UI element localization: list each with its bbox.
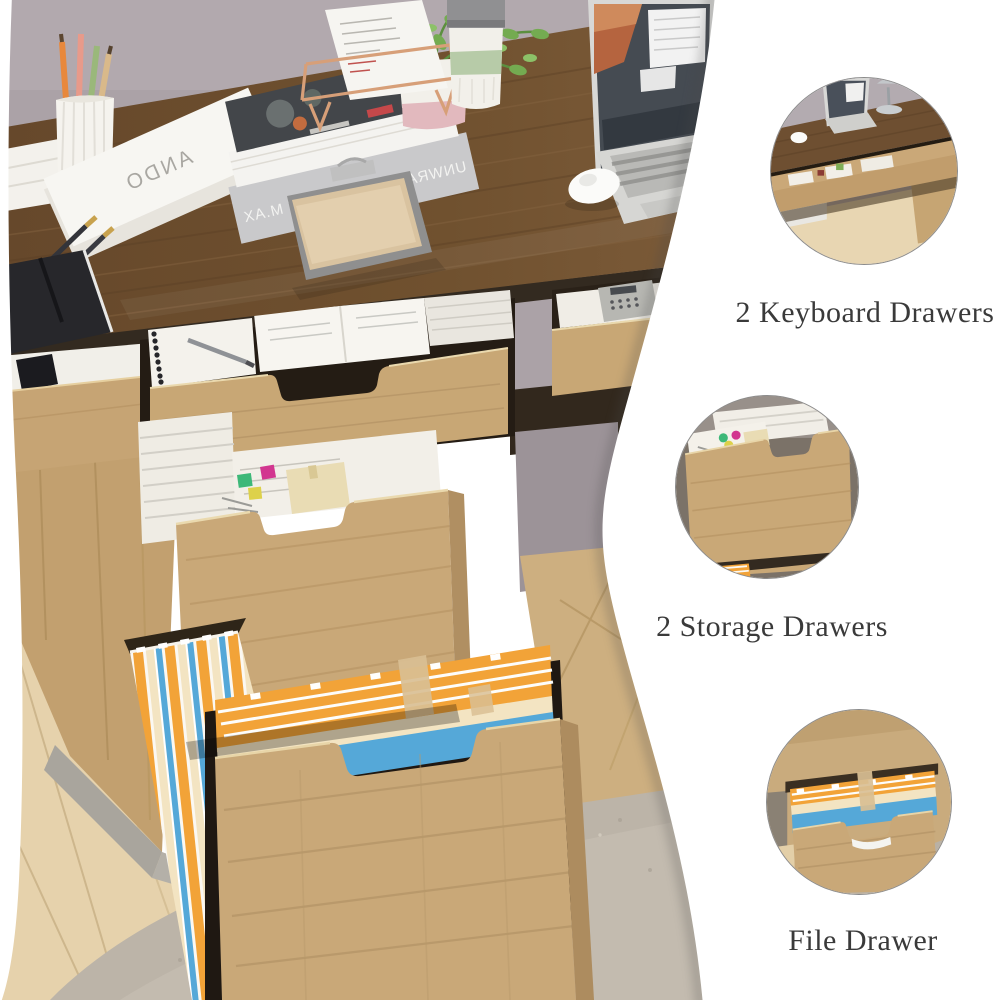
caption-keyboard-drawers: 2 Keyboard Drawers: [705, 296, 1000, 329]
closeup-photo-storage-drawer: [675, 395, 859, 579]
keyboard-drawer-inset-art: [771, 78, 957, 264]
file-drawer-inset-art: [767, 710, 951, 894]
storage-drawer-inset-art: [676, 396, 858, 578]
caption-storage-drawers: 2 Storage Drawers: [612, 610, 932, 643]
product-image: ANDO UNWRAP UVW MAP BY M.AX: [0, 0, 1000, 1000]
closeup-photo-keyboard-drawer: [770, 77, 958, 265]
file-drawer-open: [186, 645, 594, 1000]
tumbler: [447, 0, 505, 109]
caption-file-drawer: File Drawer: [703, 924, 1000, 957]
closeup-photo-file-drawer: [766, 709, 952, 895]
